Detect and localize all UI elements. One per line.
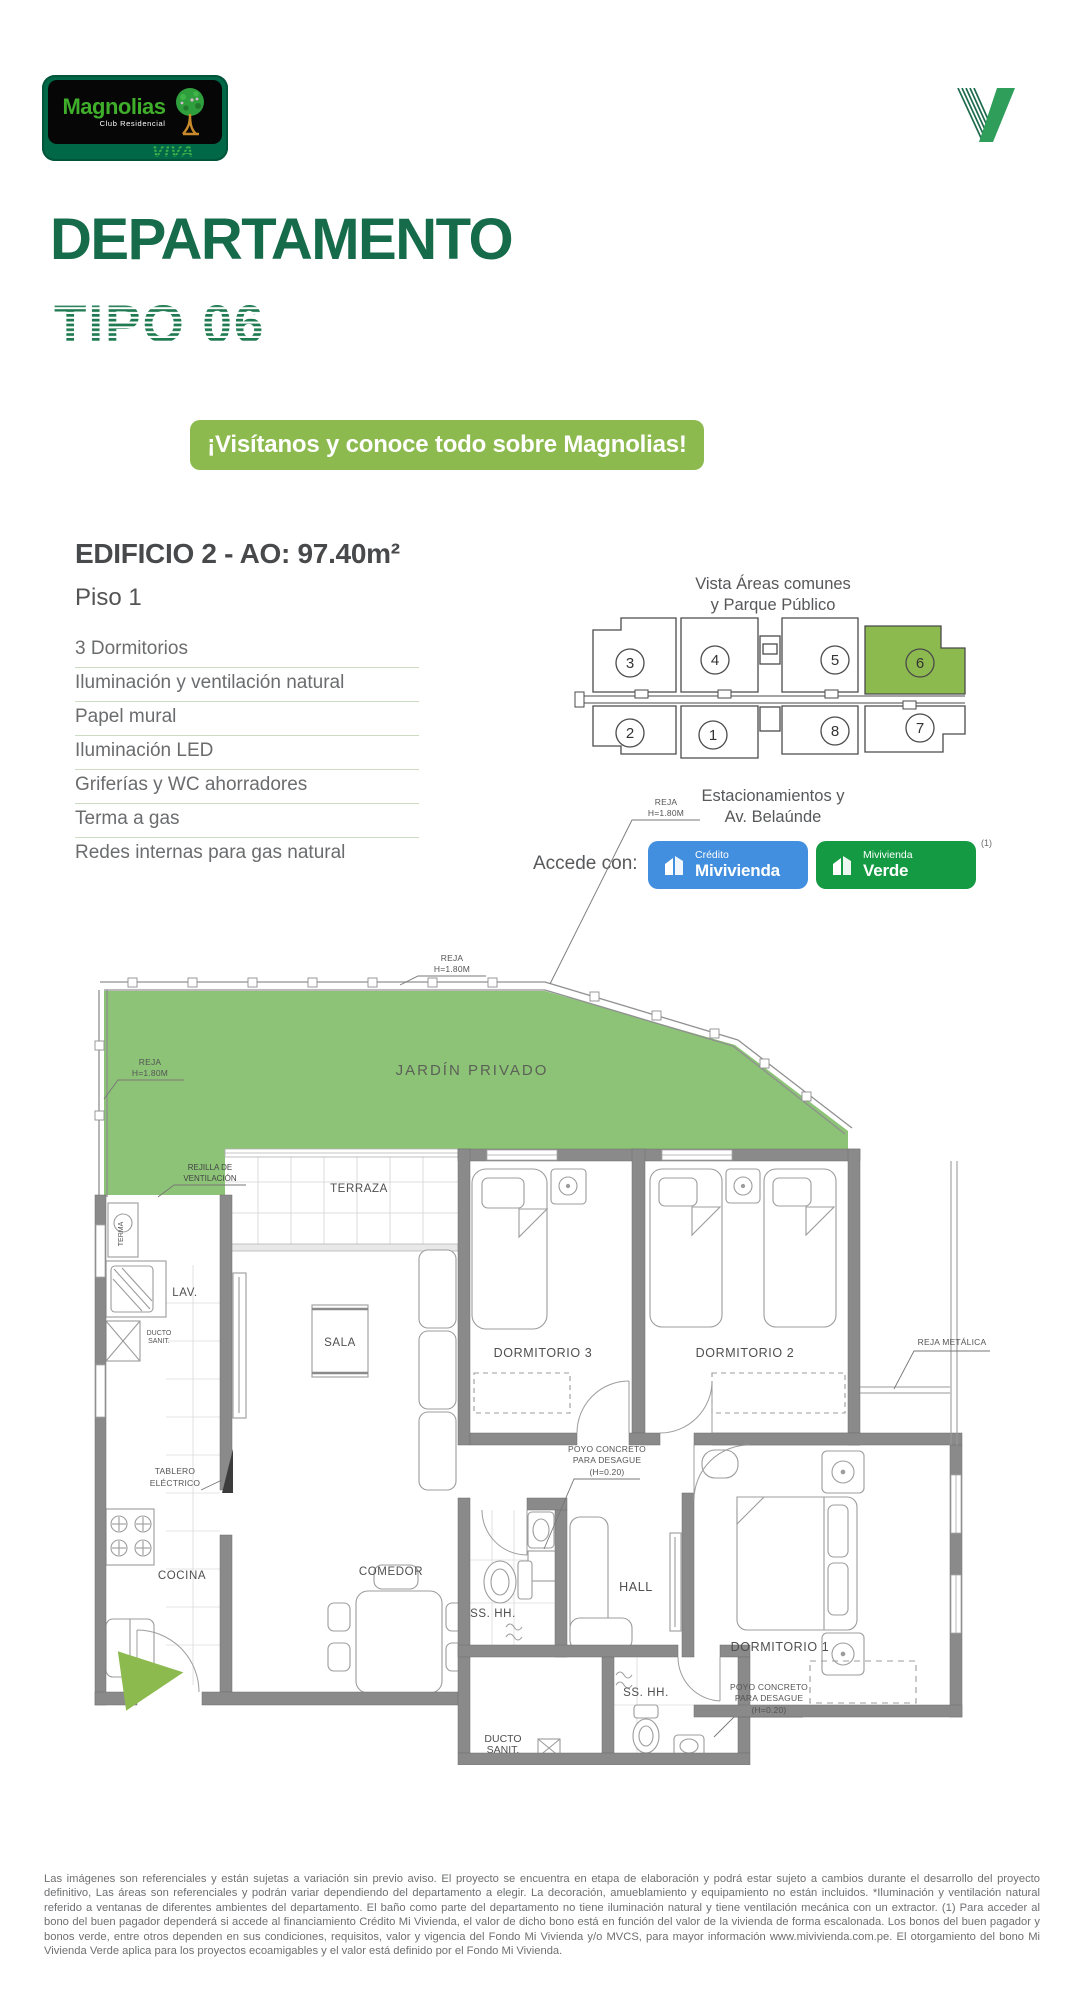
ann-poyo-1: POYO CONCRETO	[568, 1444, 646, 1454]
label-dorm1: DORMITORIO 1	[731, 1640, 830, 1654]
ann-poyo-2: POYO CONCRETO	[730, 1682, 808, 1692]
unit-number-5: 5	[831, 652, 839, 669]
unit-number-2: 2	[626, 725, 634, 742]
unit-floor: Piso 1	[75, 584, 142, 612]
viva-wordmark: VIVA	[152, 143, 218, 160]
svg-text:PARA DESAGUE: PARA DESAGUE	[573, 1455, 642, 1465]
tree-icon	[172, 84, 208, 140]
floor-plan: JARDÍN PRIVADO TERRAZA SALA LAV. COCINA …	[62, 745, 1060, 1765]
ann-reja-left: REJA	[139, 1057, 162, 1067]
unit-number-6: 6	[916, 655, 924, 672]
svg-text:ELÉCTRICO: ELÉCTRICO	[150, 1478, 201, 1488]
page: Magnolias Club Residencial VIVA	[0, 0, 1081, 2000]
label-comedor: COMEDOR	[359, 1566, 423, 1578]
svg-text:SANIT.: SANIT.	[148, 1338, 170, 1345]
magnolias-logo-inner: Magnolias Club Residencial	[48, 80, 222, 144]
unit-number-3: 3	[626, 655, 634, 672]
toilet-tank	[518, 1561, 532, 1599]
label-terma: TERMA	[118, 1221, 125, 1246]
svg-text:H=1.80M: H=1.80M	[648, 808, 684, 818]
stair-core	[760, 707, 780, 731]
svg-text:SANIT.: SANIT.	[487, 1744, 520, 1756]
unit-heading: EDIFICIO 2 - AO: 97.40m²	[75, 538, 400, 570]
page-subtitle: TIPO 06	[52, 290, 352, 356]
label-terraza: TERRAZA	[330, 1183, 388, 1195]
ann-reja-top: REJA	[441, 953, 464, 963]
svg-text:TIPO 06: TIPO 06	[54, 295, 265, 354]
terraza-parapet	[225, 1244, 458, 1251]
brand-tagline: Club Residencial	[100, 120, 166, 128]
promo-banner-text: ¡Visítanos y conoce todo sobre Magnolias…	[207, 431, 686, 459]
feature-item: 3 Dormitorios	[75, 634, 419, 668]
legal-disclaimer: Las imágenes son referenciales y están s…	[44, 1872, 1040, 1958]
ann-reja-right: REJA	[655, 797, 678, 807]
svg-text:H=1.80M: H=1.80M	[434, 964, 470, 974]
sofa	[419, 1250, 456, 1328]
label-cocina: COCINA	[158, 1570, 206, 1582]
unit-number-1: 1	[709, 727, 717, 744]
page-title: DEPARTAMENTO	[50, 206, 512, 273]
label-jardin: JARDÍN PRIVADO	[396, 1062, 549, 1079]
svg-text:H=1.80M: H=1.80M	[132, 1068, 168, 1078]
closet-dorm2	[712, 1373, 845, 1413]
building-key-plan: 3 4 5 6 2 1 8 7	[573, 606, 973, 768]
dining-table	[356, 1591, 442, 1693]
label-sshh2: SS. HH.	[623, 1687, 669, 1699]
svg-text:VENTILACIÓN: VENTILACIÓN	[183, 1174, 237, 1183]
svg-text:(H=0.20): (H=0.20)	[590, 1467, 625, 1477]
ann-rejilla: REJILLA DE	[188, 1163, 232, 1172]
promo-banner: ¡Visítanos y conoce todo sobre Magnolias…	[190, 420, 704, 470]
unit-number-8: 8	[831, 723, 839, 740]
label-lav: LAV.	[172, 1287, 197, 1299]
unit-number-7: 7	[916, 720, 924, 737]
feature-item: Iluminación y ventilación natural	[75, 668, 419, 702]
ann-reja-metalica: REJA METÁLICA	[918, 1337, 987, 1347]
elevator	[763, 644, 777, 654]
label-sshh1: SS. HH.	[470, 1608, 516, 1620]
brand-name: Magnolias	[62, 96, 165, 118]
svg-text:(H=0.20): (H=0.20)	[752, 1705, 787, 1715]
label-sala: SALA	[324, 1337, 356, 1349]
magnolias-logo: Magnolias Club Residencial VIVA	[42, 75, 228, 161]
unit-number-4: 4	[711, 652, 719, 669]
svg-text:PARA DESAGUE: PARA DESAGUE	[735, 1693, 804, 1703]
label-dorm2: DORMITORIO 2	[696, 1346, 795, 1360]
label-ducto-small: DUCTO	[147, 1330, 172, 1337]
feature-item: Papel mural	[75, 702, 419, 736]
viva-v-icon	[953, 88, 1015, 142]
terraza-tiles	[225, 1151, 458, 1244]
closet-dorm3	[474, 1373, 570, 1413]
ann-tablero: TABLERO	[155, 1466, 196, 1476]
label-hall: HALL	[619, 1580, 653, 1594]
chair	[328, 1603, 350, 1631]
toilet-tank	[634, 1705, 658, 1718]
label-dorm3: DORMITORIO 3	[494, 1346, 593, 1360]
svg-text:VIVA: VIVA	[152, 143, 194, 160]
metal-fence	[860, 1161, 957, 1445]
